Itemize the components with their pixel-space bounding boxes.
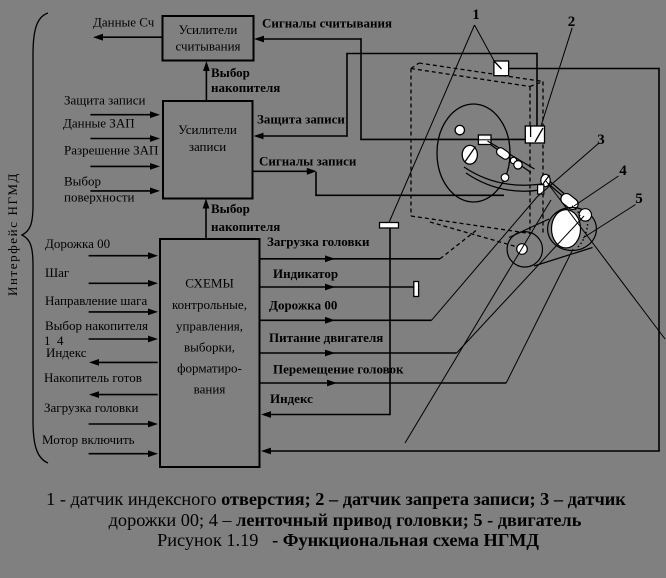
svg-text:накопителя: накопителя — [211, 219, 280, 234]
svg-text:Шаг: Шаг — [45, 265, 69, 280]
svg-text:Дорожка 00: Дорожка 00 — [45, 236, 110, 251]
svg-text:Рисунок 1.19 - Функциональна: Рисунок 1.19 - Функциональная схема НГМД — [157, 530, 539, 550]
svg-text:вания: вания — [194, 382, 226, 397]
svg-text:Загрузка головки: Загрузка головки — [44, 400, 138, 415]
svg-text:5: 5 — [635, 191, 643, 207]
svg-text:записи: записи — [189, 139, 226, 154]
svg-text:1: 1 — [472, 7, 480, 23]
svg-text:Дорожка 00: Дорожка 00 — [269, 298, 337, 313]
svg-text:2: 2 — [568, 14, 576, 30]
svg-text:Выбор накопителя: Выбор накопителя — [45, 318, 148, 333]
svg-text:Усилители: Усилители — [178, 122, 237, 137]
svg-text:Выбор: Выбор — [64, 174, 101, 189]
svg-text:Сигналы записи: Сигналы записи — [259, 154, 357, 169]
svg-text:Перемещение головок: Перемещение головок — [273, 362, 404, 377]
svg-text:Сигналы считывания: Сигналы считывания — [262, 16, 392, 31]
svg-text:Загрузка головки: Загрузка головки — [267, 234, 370, 249]
svg-text:Питание двигателя: Питание двигателя — [269, 330, 383, 345]
svg-text:накопителя: накопителя — [211, 80, 280, 95]
svg-text:Индекс: Индекс — [270, 391, 313, 406]
svg-text:Данные Сч: Данные Сч — [93, 15, 155, 30]
svg-text:Индекс: Индекс — [46, 345, 87, 360]
svg-text:контрольные,: контрольные, — [172, 297, 247, 312]
svg-text:выборки,: выборки, — [184, 340, 235, 355]
svg-text:Индикатор: Индикатор — [273, 266, 338, 281]
svg-text:3: 3 — [597, 132, 605, 148]
svg-text:Выбор: Выбор — [211, 65, 250, 80]
svg-text:Усилители: Усилители — [179, 22, 238, 37]
svg-text:Данные ЗАП: Данные ЗАП — [63, 116, 135, 131]
svg-text:поверхности: поверхности — [64, 190, 135, 205]
svg-text:Разрешение ЗАП: Разрешение ЗАП — [64, 143, 158, 158]
svg-text:Накопитель готов: Накопитель готов — [44, 370, 142, 385]
svg-text:форматиро-: форматиро- — [177, 361, 242, 376]
svg-text:Интерфейс НГМД: Интерфейс НГМД — [5, 172, 20, 296]
svg-text:СХЕМЫ: СХЕМЫ — [185, 276, 234, 291]
svg-text:Защита записи: Защита записи — [64, 93, 146, 108]
svg-text:Направление шага: Направление шага — [45, 293, 147, 308]
svg-text:4: 4 — [619, 163, 627, 179]
svg-text:дорожки 00; 4 – ленточный прив: дорожки 00; 4 – ленточный привод головки… — [109, 510, 582, 530]
svg-text:1 - датчик индексного отверсти: 1 - датчик индексного отверстия; 2 – дат… — [46, 489, 626, 509]
svg-text:Защита записи: Защита записи — [257, 112, 345, 127]
svg-text:считывания: считывания — [175, 39, 240, 54]
svg-text:Мотор включить: Мотор включить — [42, 432, 135, 447]
svg-text:Выбор: Выбор — [211, 201, 250, 216]
svg-text:управления,: управления, — [176, 319, 243, 334]
